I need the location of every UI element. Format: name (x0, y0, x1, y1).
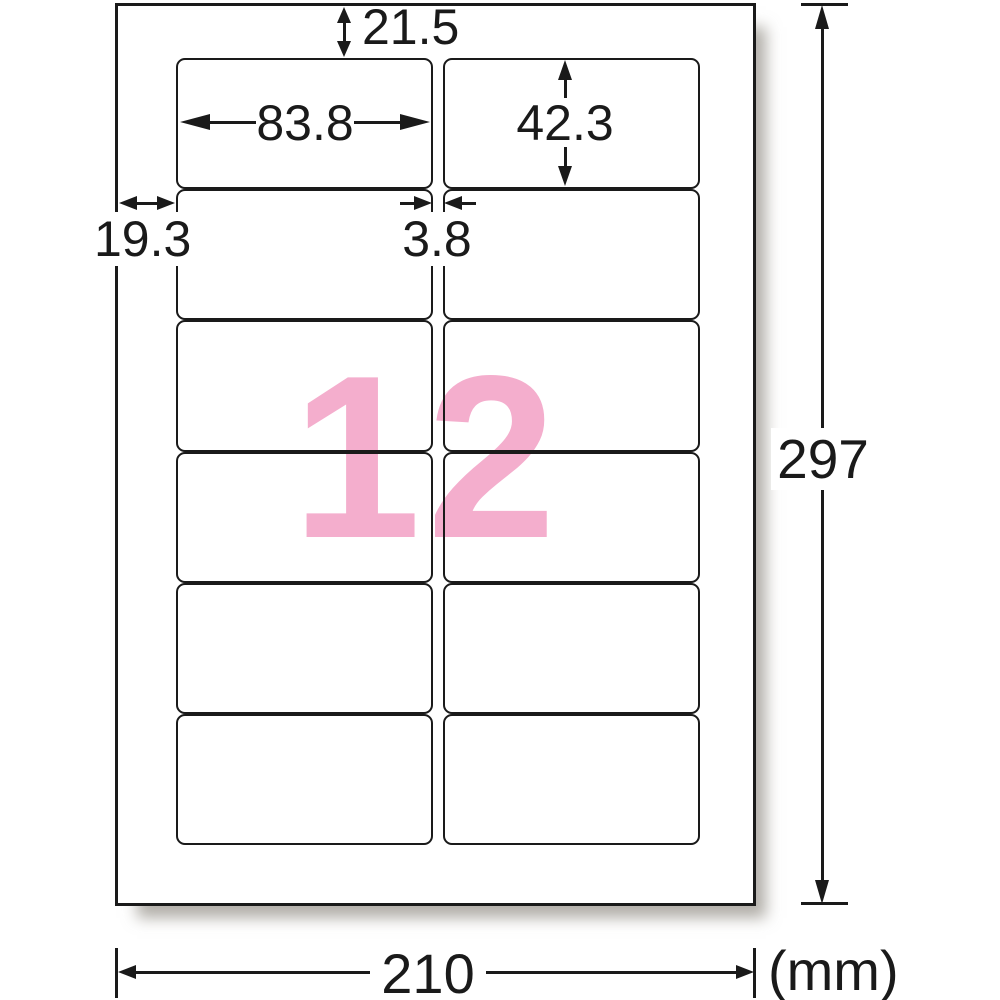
dim-line (343, 23, 346, 41)
arrowhead-right-icon (414, 196, 432, 210)
label-width-value: 83.8 (252, 96, 358, 150)
label-height-value: 42.3 (505, 96, 625, 150)
dim-line (137, 202, 157, 205)
label-cell (443, 320, 700, 451)
arrowhead-left-icon (444, 196, 462, 210)
top-margin-value: 21.5 (362, 0, 459, 54)
label-cell (443, 583, 700, 714)
label-cell (176, 452, 433, 583)
sheet-width-value: 210 (370, 944, 486, 1000)
arrowhead-left-icon (118, 965, 136, 979)
left-margin-value: 19.3 (92, 212, 193, 266)
dim-line (354, 121, 400, 124)
column-gap-arrow-left (400, 195, 432, 211)
arrowhead-up-icon (558, 60, 572, 80)
sheet-height-value: 297 (771, 428, 875, 490)
dim-line (210, 121, 256, 124)
arrowhead-down-icon (558, 166, 572, 186)
arrowhead-up-icon (337, 7, 351, 23)
arrowhead-left-icon (180, 114, 210, 130)
arrowhead-right-icon (400, 114, 430, 130)
label-sheet-diagram: 12 21.5 83.8 42.3 (0, 0, 1000, 1000)
top-margin-arrow (336, 7, 352, 57)
label-cell (443, 452, 700, 583)
label-cell (176, 320, 433, 451)
label-width-arrow-left (180, 114, 256, 130)
dim-line (462, 202, 476, 205)
left-margin-arrow (119, 195, 175, 211)
arrowhead-right-icon (157, 196, 175, 210)
label-cell (176, 583, 433, 714)
arrowhead-up-icon (815, 5, 829, 29)
arrowhead-right-icon (736, 965, 754, 979)
label-grid (176, 58, 700, 845)
arrowhead-down-icon (815, 880, 829, 904)
label-cell (443, 714, 700, 845)
arrowhead-down-icon (337, 41, 351, 57)
dim-line (400, 202, 414, 205)
label-height-arrow-down (557, 147, 573, 186)
column-gap-arrow-right (444, 195, 476, 211)
dim-tick (753, 948, 756, 998)
label-height-arrow-up (557, 60, 573, 98)
arrowhead-left-icon (119, 196, 137, 210)
label-cell (176, 714, 433, 845)
dim-tick (801, 902, 848, 905)
column-gap-value: 3.8 (394, 212, 480, 266)
label-width-arrow-right (354, 114, 430, 130)
unit-label: (mm) (768, 940, 899, 1000)
label-cell (443, 189, 700, 320)
